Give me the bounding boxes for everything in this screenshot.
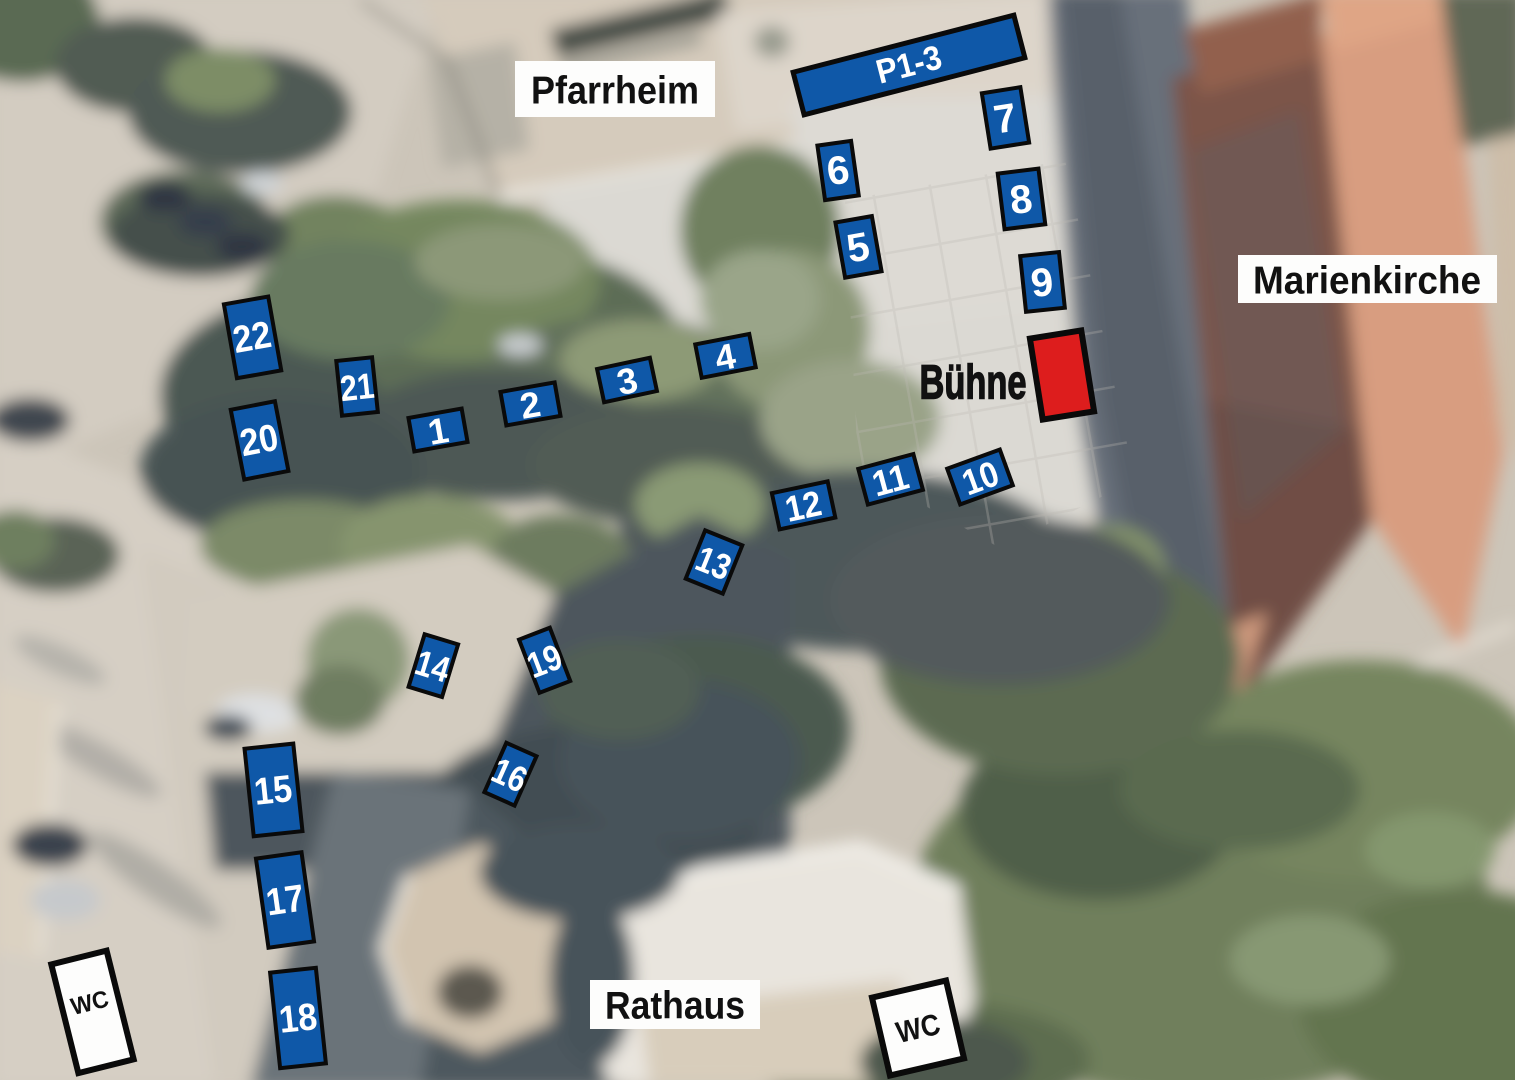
- svg-text:Bühne: Bühne: [920, 357, 1027, 410]
- svg-text:20: 20: [237, 417, 282, 465]
- svg-text:17: 17: [263, 878, 306, 925]
- svg-text:9: 9: [1029, 260, 1056, 306]
- svg-text:15: 15: [252, 768, 294, 814]
- svg-text:18: 18: [277, 996, 319, 1042]
- svg-text:Marienkirche: Marienkirche: [1253, 260, 1481, 303]
- svg-text:22: 22: [230, 314, 275, 362]
- svg-text:Pfarrheim: Pfarrheim: [531, 70, 699, 113]
- svg-text:21: 21: [338, 365, 376, 409]
- svg-text:Rathaus: Rathaus: [605, 985, 745, 1028]
